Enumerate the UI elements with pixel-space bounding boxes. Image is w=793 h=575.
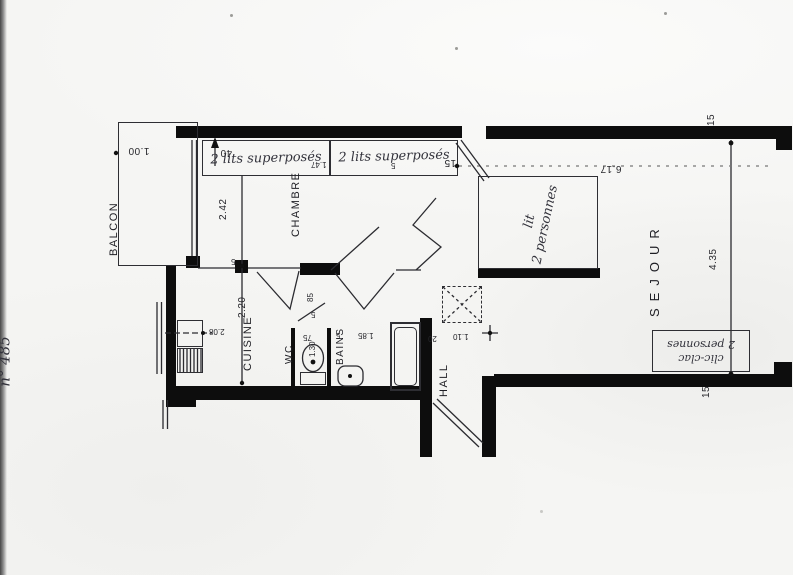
room-label-balcon: BALCON xyxy=(109,202,120,256)
dim-sejour-width: 4.35 xyxy=(709,249,719,270)
sofa-bed-label-line2: 2 personnes xyxy=(667,337,735,351)
room-label-chambre: CHAMBRE xyxy=(291,171,302,237)
dim-dot xyxy=(729,372,734,377)
dim-bunk-length: 1.47 xyxy=(311,160,327,168)
dim-wc-door: 85 xyxy=(307,293,315,302)
door-leaf-sejour-top xyxy=(456,140,489,181)
interior-thin-walls xyxy=(198,268,421,270)
dim-cuisine-depth: 2.20 xyxy=(238,297,248,318)
dim-dot xyxy=(729,141,734,146)
sofa-bed-label: clic-clac 2 personnes xyxy=(652,330,750,372)
dim-tick-sejour-top: 15 xyxy=(707,114,717,126)
room-label-cuisine: CUISINE xyxy=(243,316,254,371)
dim-bains-width: 1.85 xyxy=(358,331,374,339)
dim-tick-bains: 5 xyxy=(336,331,340,339)
kitchen-bottom-window-lines xyxy=(163,400,168,429)
plan-linework xyxy=(0,0,793,575)
balcony-window-lines xyxy=(192,140,197,256)
dim-dot xyxy=(240,381,244,385)
door-swing-bains xyxy=(335,273,394,309)
dim-sejour-length: 6.17 xyxy=(600,163,621,173)
dim-tick-gap: 15 xyxy=(444,157,456,167)
dim-chambre-depth: 2.42 xyxy=(219,199,229,220)
washbasin-drain xyxy=(348,374,352,378)
dim-tick-wc: 5 xyxy=(311,310,315,318)
handwritten-note: " Les Aiguilles " Immeuble III n° 485 xyxy=(0,271,14,421)
toilet-drain xyxy=(311,360,316,365)
bunk-bed-1-label: 2 lits superposés xyxy=(204,140,329,175)
room-label-hall: HALL xyxy=(439,363,450,397)
dim-balcon-width: 1.00 xyxy=(128,145,149,155)
dim-tick-bunk: 5 xyxy=(391,161,395,169)
dim-balcon-door: 40 xyxy=(220,147,232,157)
scanned-floor-plan: " Les Aiguilles " Immeuble III n° 485 BA… xyxy=(0,0,793,575)
dim-wc-width: 75 xyxy=(303,333,312,341)
appliance-hatch xyxy=(180,349,201,372)
dim-dot xyxy=(240,264,244,268)
dim-wc-depth: 1.30 xyxy=(309,341,317,357)
dim-dot xyxy=(488,331,492,335)
room-label-sejour: SEJOUR xyxy=(648,222,661,317)
door-swing-chambre xyxy=(331,227,379,270)
dim-hall-width: 1.10 xyxy=(453,332,469,340)
dim-tick-cuisine: 5 xyxy=(231,257,235,265)
dim-counter-width: 2.08 xyxy=(209,327,225,335)
closet-cross xyxy=(443,287,481,322)
sofa-bed-label-line1: clic-clac xyxy=(678,351,723,365)
dim-hall-tick: 20 xyxy=(428,334,437,342)
folding-door-chambre xyxy=(413,198,441,270)
dim-dot xyxy=(114,151,118,155)
entrance-door-leaf xyxy=(433,399,483,447)
door-swing-cuisine xyxy=(257,271,299,309)
dim-tick-sejour-bottom: 15 xyxy=(702,386,712,398)
room-label-wc: WC xyxy=(285,344,295,364)
note-line-3: n° 485 xyxy=(0,271,14,421)
kitchen-side-window-lines xyxy=(157,302,162,374)
dim-dot xyxy=(201,331,205,335)
